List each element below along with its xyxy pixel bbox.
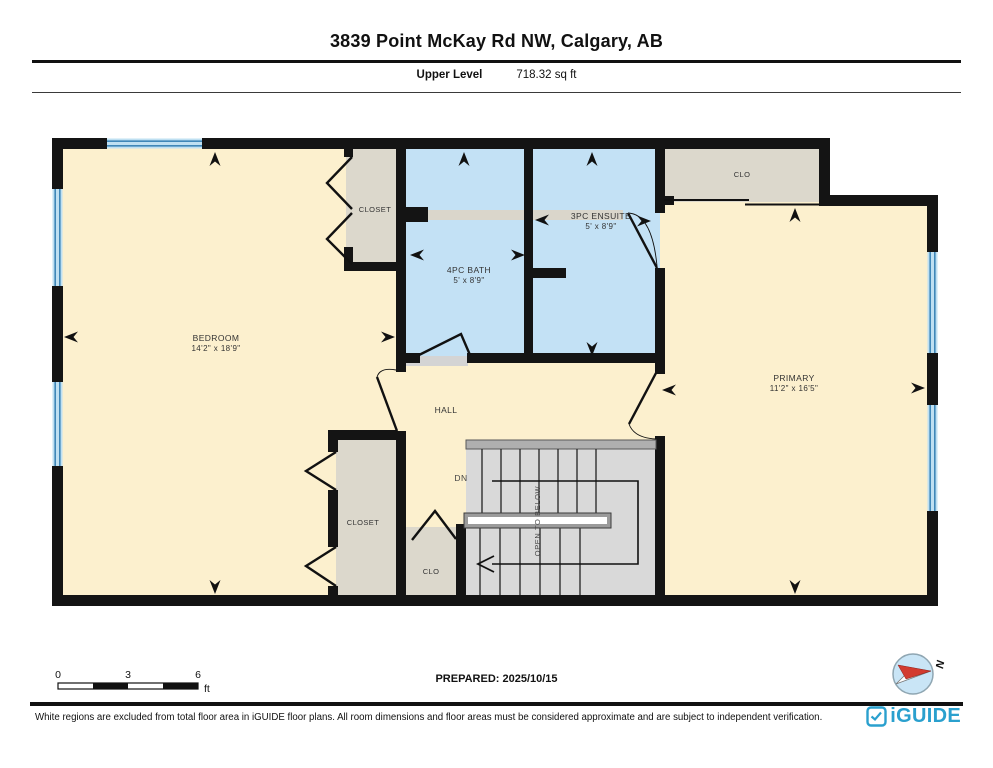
bath-tub-edge [427,210,524,220]
window-left-upper [53,189,63,286]
closet-hall-label: CLOSET [347,518,379,527]
disclaimer-text: White regions are excluded from total fl… [35,712,873,723]
closet-hall-floor [336,436,400,598]
iguide-logo: iGUIDE [866,705,961,728]
iguide-logo-text: iGUIDE [890,705,961,728]
window-left-lower [53,382,63,466]
hall-label: HALL [435,405,458,415]
window-right-lower [928,405,938,511]
window-top [107,139,202,149]
stairs-header-bar [466,440,656,449]
clo-top-label: CLO [734,170,751,179]
bath-label: 4PC BATH [447,265,491,275]
ensuite-label: 3PC ENSUITE [571,211,631,221]
primary-floor [660,197,933,601]
open-to-below-label: OPEN TO BELOW [533,485,542,556]
iguide-logo-icon [866,706,887,727]
window-right-upper [928,252,938,353]
bedroom-dims: 14'2" x 18'9" [191,344,240,353]
clo-bottom-label: CLO [423,567,440,576]
bath-dims: 5' x 8'9" [453,276,484,285]
stairs-dn-label: DN [454,473,467,483]
closet-top-label: CLOSET [359,205,391,214]
floorplan-drawing: DN OPEN TO BELOW [0,0,993,768]
prepared-date: PREPARED: 2025/10/15 [0,673,993,685]
floorplan-page: 3839 Point McKay Rd NW, Calgary, AB Uppe… [0,0,993,768]
ensuite-floor [529,143,660,359]
footer-divider [30,702,963,706]
compass-north-label: N [933,659,946,670]
room-fills [57,143,933,601]
bedroom-label: BEDROOM [193,333,240,343]
primary-label: PRIMARY [773,373,814,383]
ensuite-dims: 5' x 8'9" [585,222,616,231]
clo-bottom-floor [400,527,462,598]
primary-dims: 11'2" x 16'5" [770,384,818,393]
